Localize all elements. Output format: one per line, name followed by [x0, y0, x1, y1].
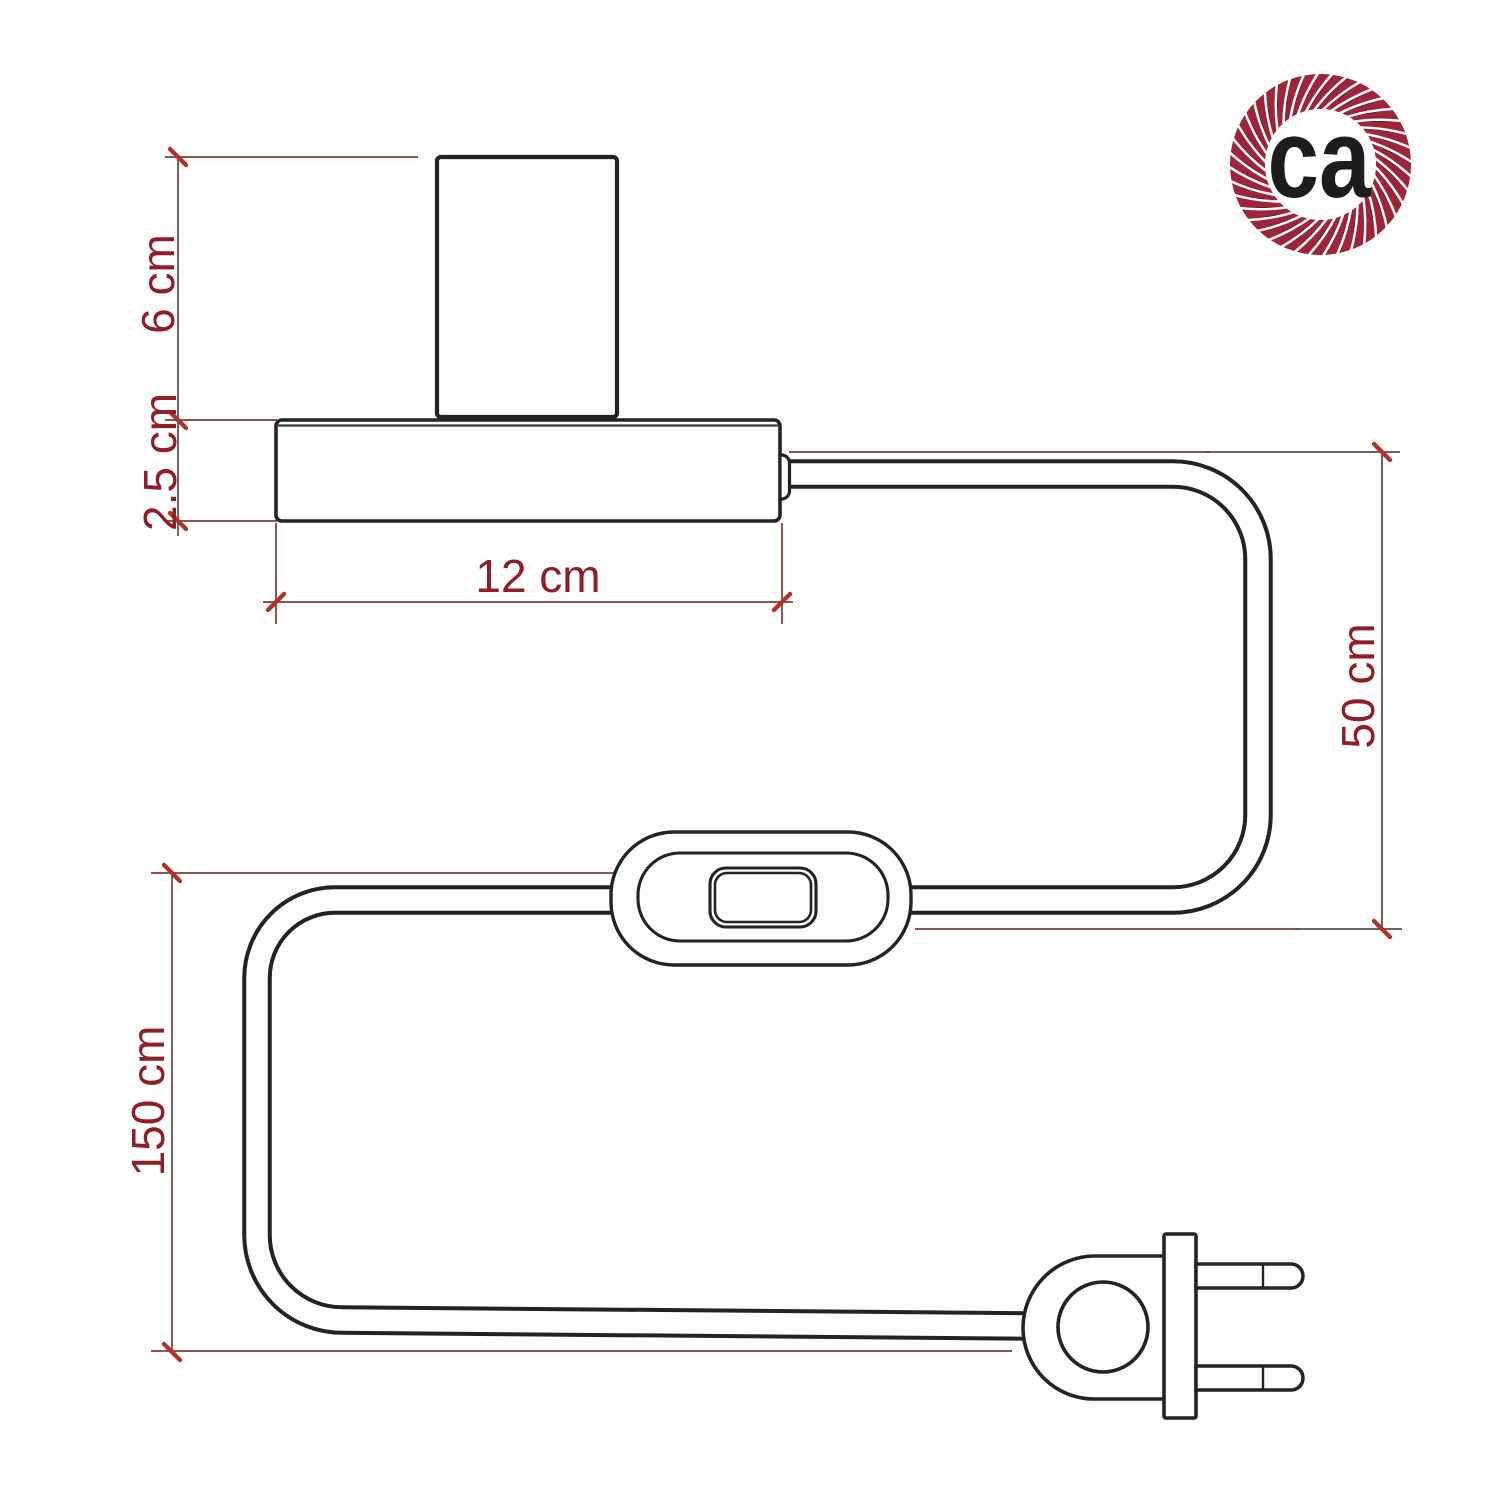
svg-text:50 cm: 50 cm [1332, 623, 1384, 748]
svg-text:6 cm: 6 cm [132, 234, 184, 334]
svg-text:2.5 cm: 2.5 cm [134, 393, 186, 531]
svg-text:12 cm: 12 cm [475, 550, 600, 602]
svg-text:150 cm: 150 cm [122, 1026, 174, 1177]
svg-text:ca: ca [1268, 96, 1372, 221]
